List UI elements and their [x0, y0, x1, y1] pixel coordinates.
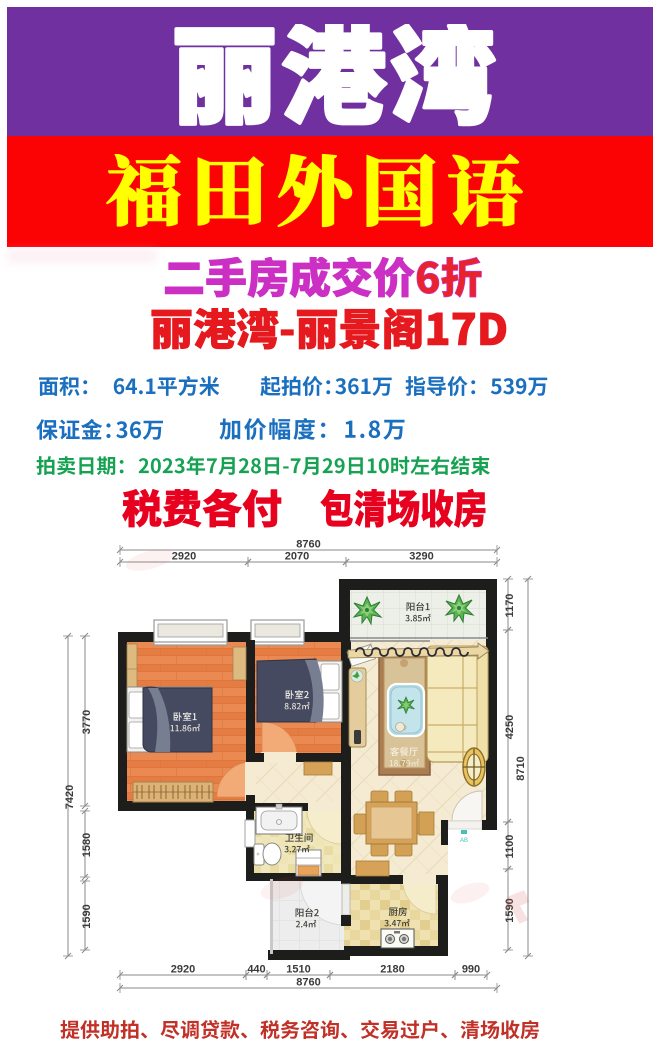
svg-text:8710: 8710: [515, 756, 527, 780]
svg-text:2070: 2070: [285, 551, 309, 563]
svg-text:2920: 2920: [171, 964, 195, 976]
svg-text:3290: 3290: [409, 551, 433, 563]
svg-text:7420: 7420: [64, 785, 76, 809]
svg-text:990: 990: [462, 964, 480, 976]
svg-text:4250: 4250: [504, 715, 516, 739]
svg-text:1510: 1510: [286, 964, 310, 976]
svg-text:440: 440: [247, 964, 265, 976]
svg-text:1170: 1170: [504, 594, 516, 618]
svg-text:2180: 2180: [380, 964, 404, 976]
svg-text:1590: 1590: [81, 904, 93, 928]
svg-text:8760: 8760: [296, 540, 320, 551]
svg-text:1580: 1580: [81, 833, 93, 857]
svg-text:1100: 1100: [504, 835, 516, 859]
svg-text:3770: 3770: [81, 710, 93, 734]
svg-text:2920: 2920: [172, 551, 196, 563]
svg-text:8760: 8760: [296, 977, 320, 989]
svg-text:AB: AB: [460, 838, 468, 844]
